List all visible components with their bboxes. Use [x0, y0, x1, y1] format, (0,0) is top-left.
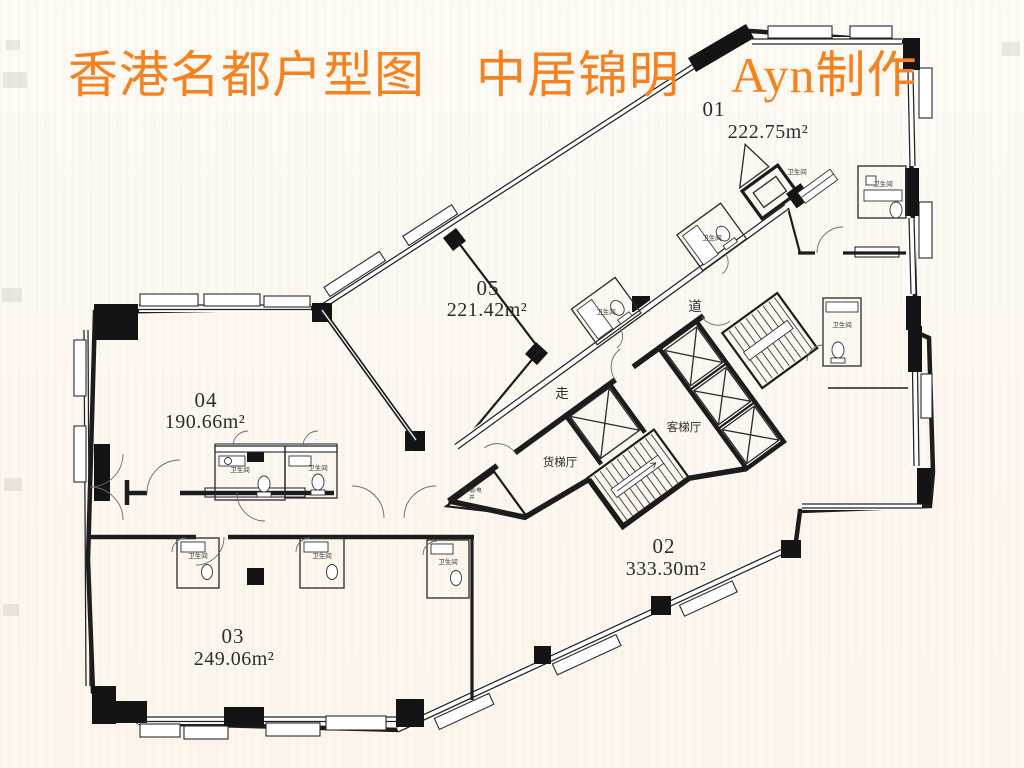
window-bump — [140, 724, 180, 737]
unit-05-area: 221.42m² — [447, 299, 528, 321]
bathroom-label: 卫生间 — [596, 307, 616, 316]
bathroom-label: 卫生间 — [308, 463, 328, 472]
shaft-label-1: 强/弱/电 — [462, 486, 482, 494]
unit-03-area: 249.06m² — [194, 648, 275, 670]
bathroom-label: 卫生间 — [702, 233, 722, 242]
window-bump — [919, 202, 932, 258]
unit-02-number: 02 — [653, 534, 676, 558]
floorplan-drawing: 01 222.75m² 02 333.30m² 03 249.06m² 04 1… — [0, 0, 1024, 768]
bathroom-01 — [858, 166, 906, 218]
window-bump — [74, 340, 86, 396]
page-title: 香港名都户型图 中居锦明 Ayn制作 — [68, 48, 968, 103]
bathroom-label: 卫生间 — [787, 167, 807, 176]
window-bump — [184, 726, 228, 739]
corridor-label-a: 道 — [688, 299, 702, 314]
window-bump — [768, 26, 832, 38]
passenger-hall-label: 客梯厅 — [667, 420, 702, 434]
unit-03-number: 03 — [222, 624, 245, 648]
bathroom-label: 卫生间 — [188, 551, 208, 560]
shaft-label-2: 井 — [469, 493, 475, 501]
window-bump — [140, 294, 198, 306]
bathroom-label: 卫生间 — [873, 179, 893, 188]
window-bump — [266, 723, 320, 736]
corridor-label-b: 走 — [555, 386, 569, 401]
window-bump — [921, 374, 932, 418]
bathroom-label: 卫生间 — [832, 320, 852, 329]
window-bump — [326, 716, 386, 730]
unit-04-area: 190.66m² — [165, 411, 246, 433]
window-bump — [264, 296, 310, 307]
window-bump — [74, 426, 86, 482]
window-bump — [204, 294, 260, 306]
corridor-wall — [449, 316, 704, 501]
floorplan-page: 香港名都户型图 中居锦明 Ayn制作 — [0, 0, 1024, 768]
freight-hall-label: 货梯厅 — [543, 455, 578, 469]
unit-02-area: 333.30m² — [626, 558, 707, 580]
bathroom-02 — [823, 298, 861, 366]
bathroom-label: 卫生间 — [312, 551, 332, 560]
unit-04-number: 04 — [195, 388, 218, 412]
bathroom-label: 卫生间 — [230, 465, 250, 474]
unit-05-number: 05 — [477, 276, 500, 300]
bathroom-label: 卫生间 — [438, 557, 458, 566]
unit-01-area: 222.75m² — [728, 121, 809, 143]
window-bump — [850, 26, 892, 38]
